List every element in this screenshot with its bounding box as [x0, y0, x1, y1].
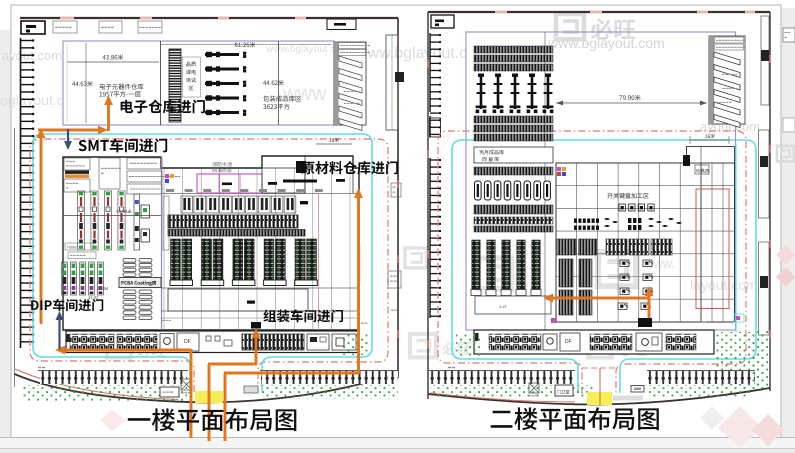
svg-text:t-6600: t-6600	[67, 246, 77, 250]
svg-text:www.bglayout.c: www.bglayout.c	[355, 45, 467, 62]
svg-text:43.94: 43.94	[97, 286, 109, 291]
svg-text:www: www	[282, 83, 327, 105]
svg-text:layout.com: layout.com	[690, 277, 758, 293]
svg-text:DF: DF	[565, 339, 572, 345]
svg-text:A 4F: A 4F	[499, 305, 507, 309]
svg-text:DF: DF	[184, 339, 191, 345]
